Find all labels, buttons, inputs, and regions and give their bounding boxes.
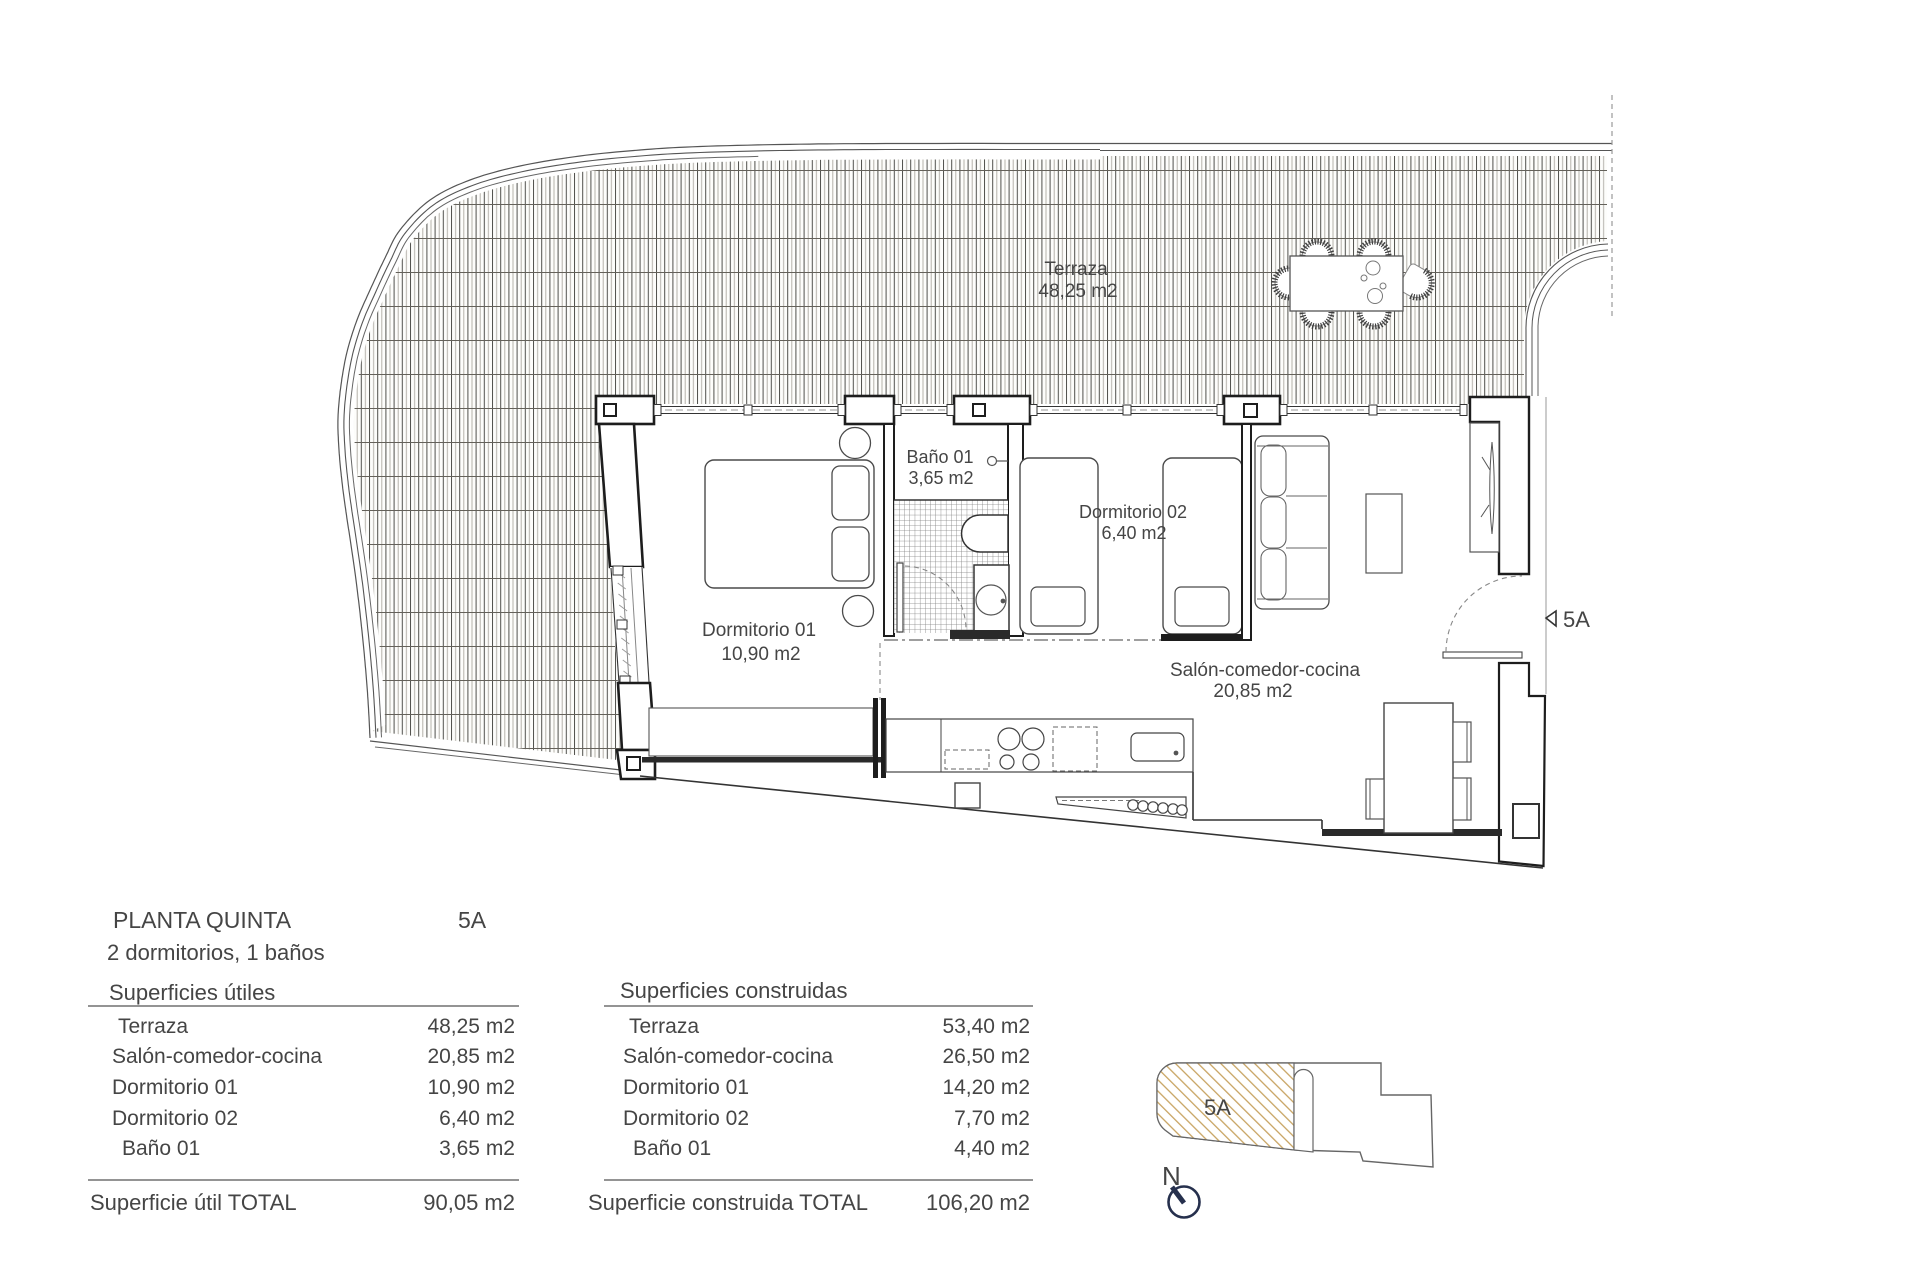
svg-text:10,90 m2: 10,90 m2 [427,1076,515,1099]
svg-text:2 dormitorios, 1 baños: 2 dormitorios, 1 baños [107,940,325,965]
svg-text:Dormitorio 02: Dormitorio 02 [623,1107,749,1130]
svg-text:Baño 01: Baño 01 [122,1137,200,1160]
svg-text:3,65 m2: 3,65 m2 [908,468,973,488]
svg-text:Superficie construida TOTAL: Superficie construida TOTAL [588,1190,868,1215]
svg-text:Dormitorio 02: Dormitorio 02 [1079,502,1187,522]
svg-text:Terraza: Terraza [118,1015,188,1038]
svg-text:Dormitorio 01: Dormitorio 01 [623,1076,749,1099]
svg-text:20,85 m2: 20,85 m2 [427,1045,515,1068]
svg-text:7,70 m2: 7,70 m2 [954,1107,1030,1130]
svg-text:20,85 m2: 20,85 m2 [1213,681,1292,702]
svg-text:3,65 m2: 3,65 m2 [439,1137,515,1160]
svg-text:Terraza: Terraza [629,1015,699,1038]
svg-text:26,50 m2: 26,50 m2 [942,1045,1030,1068]
svg-text:Superficies construidas: Superficies construidas [620,978,847,1003]
svg-text:Baño 01: Baño 01 [633,1137,711,1160]
svg-text:6,40 m2: 6,40 m2 [1101,523,1166,543]
svg-text:Salón-comedor-cocina: Salón-comedor-cocina [1170,660,1361,681]
svg-text:10,90 m2: 10,90 m2 [721,644,800,665]
svg-text:14,20 m2: 14,20 m2 [942,1076,1030,1099]
svg-text:Terraza: Terraza [1044,259,1108,280]
svg-text:Superficie útil TOTAL: Superficie útil TOTAL [90,1190,297,1215]
svg-text:6,40 m2: 6,40 m2 [439,1107,515,1130]
svg-text:Salón-comedor-cocina: Salón-comedor-cocina [623,1045,833,1068]
svg-text:4,40 m2: 4,40 m2 [954,1137,1030,1160]
svg-text:PLANTA QUINTA: PLANTA QUINTA [113,907,292,933]
svg-text:Salón-comedor-cocina: Salón-comedor-cocina [112,1045,322,1068]
svg-text:48,25 m2: 48,25 m2 [1038,281,1117,302]
svg-text:Dormitorio 02: Dormitorio 02 [112,1107,238,1130]
svg-text:5A: 5A [1204,1095,1231,1120]
svg-text:90,05 m2: 90,05 m2 [423,1190,515,1215]
svg-text:Superficies útiles: Superficies útiles [109,980,275,1005]
svg-text:Dormitorio 01: Dormitorio 01 [702,620,816,641]
svg-text:53,40 m2: 53,40 m2 [942,1015,1030,1038]
svg-text:Dormitorio 01: Dormitorio 01 [112,1076,238,1099]
svg-text:106,20 m2: 106,20 m2 [926,1190,1030,1215]
svg-text:5A: 5A [1563,607,1590,632]
svg-text:Baño 01: Baño 01 [906,447,973,467]
svg-text:5A: 5A [458,907,487,933]
svg-text:48,25 m2: 48,25 m2 [427,1015,515,1038]
